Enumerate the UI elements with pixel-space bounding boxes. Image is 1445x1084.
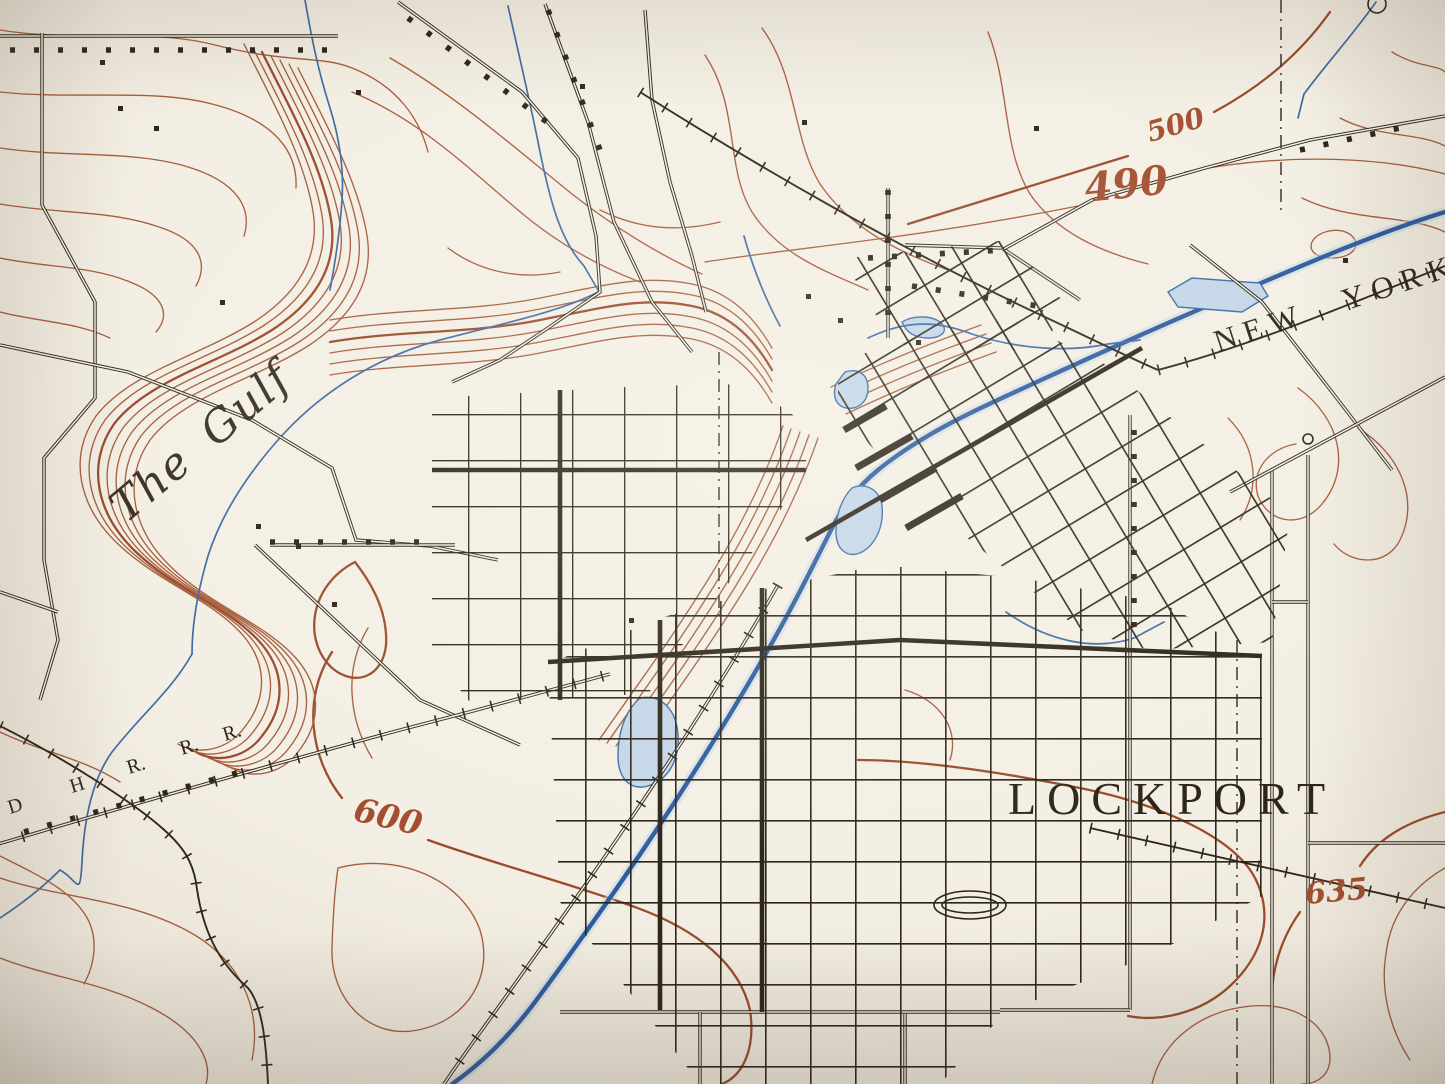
building-marks-shape: [916, 340, 921, 345]
building-marks-shape: [220, 300, 225, 305]
building-marks-shape: [1343, 258, 1348, 263]
building-marks-shape: [296, 544, 301, 549]
building-marks-shape: [629, 618, 634, 623]
building-marks-shape: [802, 120, 807, 125]
topo-map: The Gulf LOCKPORT NEW YORK 500 490 600 6…: [0, 0, 1445, 1084]
building-marks-shape: [332, 602, 337, 607]
building-marks-shape: [580, 84, 585, 89]
building-marks-shape: [154, 126, 159, 131]
label-lockport: LOCKPORT: [1008, 773, 1336, 824]
building-marks-shape: [100, 60, 105, 65]
antique-topo-map-photo: The Gulf LOCKPORT NEW YORK 500 490 600 6…: [0, 0, 1445, 1084]
label-contour-635: 635: [1304, 872, 1369, 912]
building-marks-shape: [256, 524, 261, 529]
building-marks-shape: [118, 106, 123, 111]
building-marks-shape: [838, 318, 843, 323]
building-marks-shape: [356, 90, 361, 95]
building-marks-shape: [1034, 126, 1039, 131]
building-marks-shape: [806, 294, 811, 299]
label-contour-490: 490: [1082, 156, 1170, 211]
